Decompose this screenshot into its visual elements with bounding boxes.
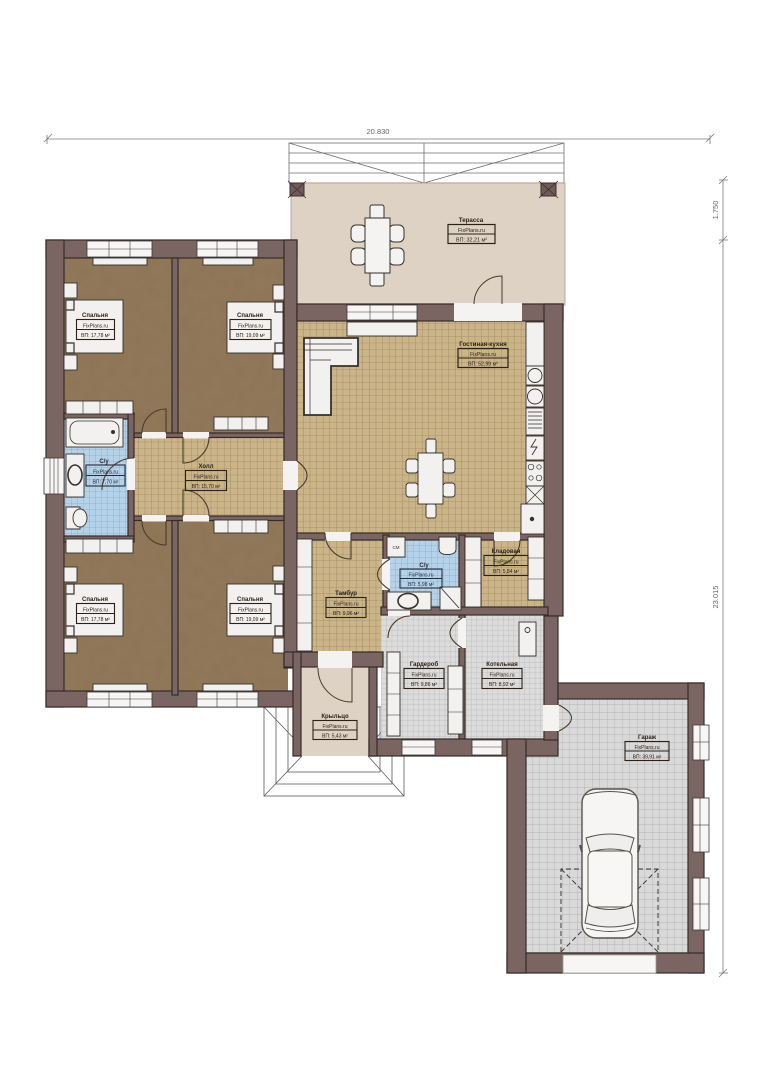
svg-text:FixPlans.ru: FixPlans.ru xyxy=(193,475,218,481)
svg-text:Спальня: Спальня xyxy=(237,597,263,603)
svg-text:ВП: 15,70 м²: ВП: 15,70 м² xyxy=(192,484,221,490)
svg-text:ВП: 39,91 м²: ВП: 39,91 м² xyxy=(633,755,662,761)
svg-text:ВП: 19,09 м²: ВП: 19,09 м² xyxy=(236,617,265,623)
svg-text:FixPlans.ru: FixPlans.ru xyxy=(489,673,514,679)
svg-text:Тамбур: Тамбур xyxy=(335,590,357,597)
svg-text:ВП: 9,86 м²: ВП: 9,86 м² xyxy=(411,682,437,688)
svg-text:ВП: 7,70 м²: ВП: 7,70 м² xyxy=(93,480,119,486)
svg-text:FixPlans.ru: FixPlans.ru xyxy=(493,560,518,566)
svg-text:ВП: 32,21 м²: ВП: 32,21 м² xyxy=(456,238,487,244)
svg-text:Спальня: Спальня xyxy=(82,597,108,603)
svg-text:FixPlans.ru: FixPlans.ru xyxy=(411,673,436,679)
svg-text:ВП: 5,43 м²: ВП: 5,43 м² xyxy=(322,734,348,740)
svg-text:Кладовая: Кладовая xyxy=(492,549,521,555)
svg-text:Спальня: Спальня xyxy=(237,313,263,319)
svg-text:FixPlans.ru: FixPlans.ru xyxy=(458,228,485,234)
svg-text:ВП: 5,98 м²: ВП: 5,98 м² xyxy=(408,582,434,588)
svg-text:FixPlans.ru: FixPlans.ru xyxy=(408,573,433,579)
svg-text:Крыльцо: Крыльцо xyxy=(321,714,349,720)
svg-text:ВП: 19,09 м²: ВП: 19,09 м² xyxy=(236,333,265,339)
svg-text:ВП: 17,78 м²: ВП: 17,78 м² xyxy=(81,333,110,339)
svg-text:FixPlans.ru: FixPlans.ru xyxy=(634,745,659,751)
svg-text:С/у: С/у xyxy=(99,459,109,465)
svg-text:FixPlans.ru: FixPlans.ru xyxy=(238,608,263,614)
svg-text:ВП: 17,78 м²: ВП: 17,78 м² xyxy=(81,617,110,623)
svg-text:FixPlans.ru: FixPlans.ru xyxy=(333,602,358,608)
svg-text:1.750: 1.750 xyxy=(711,201,720,220)
svg-text:FixPlans.ru: FixPlans.ru xyxy=(93,470,118,476)
svg-text:ВП: 9,96 м²: ВП: 9,96 м² xyxy=(333,611,359,617)
svg-text:Гараж: Гараж xyxy=(638,735,657,741)
svg-text:Спальня: Спальня xyxy=(82,313,108,319)
svg-text:Холл: Холл xyxy=(198,464,213,470)
svg-text:FixPlans.ru: FixPlans.ru xyxy=(470,352,496,358)
svg-text:Терасса: Терасса xyxy=(459,217,484,224)
svg-text:FixPlans.ru: FixPlans.ru xyxy=(322,724,347,730)
svg-text:20.830: 20.830 xyxy=(367,127,390,136)
svg-text:ВП: 8,92 м²: ВП: 8,92 м² xyxy=(489,682,515,688)
svg-text:ВП: 5,84 м²: ВП: 5,84 м² xyxy=(493,569,519,575)
svg-text:FixPlans.ru: FixPlans.ru xyxy=(83,608,108,614)
svg-text:ВП: 52,99 м²: ВП: 52,99 м² xyxy=(468,362,498,368)
svg-text:Гостиная-кухня: Гостиная-кухня xyxy=(459,341,507,348)
svg-text:FixPlans.ru: FixPlans.ru xyxy=(238,324,263,330)
svg-text:С/у: С/у xyxy=(419,563,429,569)
svg-text:СМ: СМ xyxy=(393,545,400,550)
svg-text:23.015: 23.015 xyxy=(711,586,720,609)
svg-text:Котельная: Котельная xyxy=(486,662,518,668)
svg-text:FixPlans.ru: FixPlans.ru xyxy=(83,324,108,330)
svg-text:Гардероб: Гардероб xyxy=(410,661,439,668)
